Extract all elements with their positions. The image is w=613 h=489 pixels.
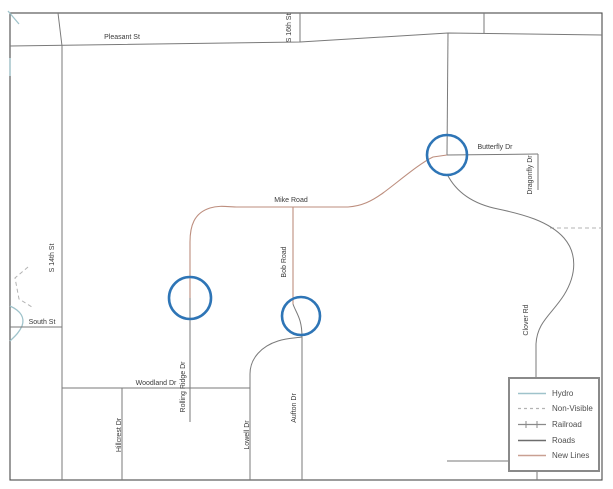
legend-item-railroad: Railroad	[517, 420, 594, 429]
dashed-line-icon	[517, 405, 547, 412]
legend-item-non-visible: Non-Visible	[517, 404, 594, 413]
label-woodland-dr: Woodland Dr	[136, 380, 177, 387]
legend-label: Hydro	[552, 389, 573, 398]
label-lowell-dr: Lowell Dr	[244, 420, 251, 450]
map-page: Pleasant St S 16th St S 14th St South St…	[0, 0, 613, 489]
legend-item-hydro: Hydro	[517, 389, 594, 398]
legend-label: New Lines	[552, 451, 589, 460]
label-rolling-ridge-dr: Rolling Ridge Dr	[180, 361, 187, 413]
legend-label: Non-Visible	[552, 404, 593, 413]
label-pleasant-st: Pleasant St	[104, 34, 140, 41]
legend-item-roads: Roads	[517, 436, 594, 445]
label-butterfly-dr: Butterfly Dr	[477, 144, 513, 151]
label-south-st: South St	[29, 319, 56, 326]
label-mike-road: Mike Road	[274, 197, 308, 204]
road-line-icon	[517, 437, 547, 444]
label-clover-rd: Clover Rd	[523, 304, 530, 335]
hydro-line-icon	[517, 390, 547, 397]
label-bob-road: Bob Road	[281, 246, 288, 277]
label-aufton-dr: Aufton Dr	[291, 393, 298, 423]
legend-label: Railroad	[552, 420, 582, 429]
label-s-14th-st: S 14th St	[49, 244, 56, 273]
label-s-16th-st: S 16th St	[286, 14, 293, 43]
label-hillcrest-dr: Hillcrest Dr	[116, 417, 123, 452]
railroad-line-icon	[517, 420, 547, 429]
label-dragonfly-dr: Dragonfly Dr	[527, 155, 534, 195]
legend-item-new-lines: New Lines	[517, 451, 594, 460]
legend-label: Roads	[552, 436, 575, 445]
new-line-icon	[517, 452, 547, 459]
map-legend: Hydro Non-Visible Railroad Roads	[508, 377, 600, 472]
